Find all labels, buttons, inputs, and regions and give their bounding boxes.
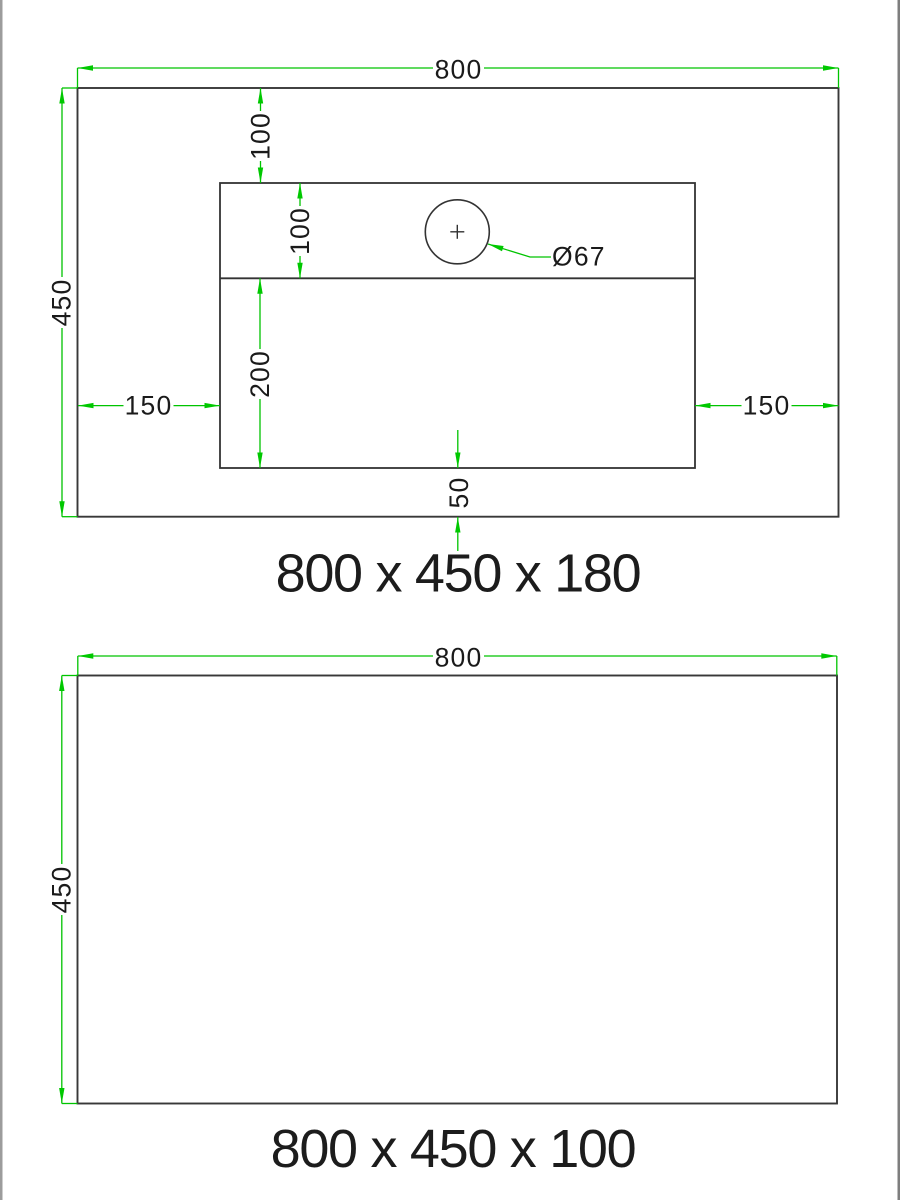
svg-text:800 x 450 x 100: 800 x 450 x 100 bbox=[271, 1119, 636, 1179]
svg-text:50: 50 bbox=[444, 477, 474, 509]
svg-text:200: 200 bbox=[245, 350, 275, 398]
svg-text:150: 150 bbox=[743, 391, 791, 421]
svg-text:100: 100 bbox=[285, 207, 315, 255]
svg-text:150: 150 bbox=[125, 391, 173, 421]
svg-text:800: 800 bbox=[435, 643, 483, 673]
svg-text:450: 450 bbox=[46, 866, 76, 914]
svg-text:800: 800 bbox=[435, 55, 483, 85]
svg-text:800 x 450 x 180: 800 x 450 x 180 bbox=[276, 544, 641, 604]
svg-text:100: 100 bbox=[245, 112, 275, 160]
svg-text:450: 450 bbox=[47, 279, 77, 327]
svg-text:Ø67: Ø67 bbox=[552, 242, 606, 272]
